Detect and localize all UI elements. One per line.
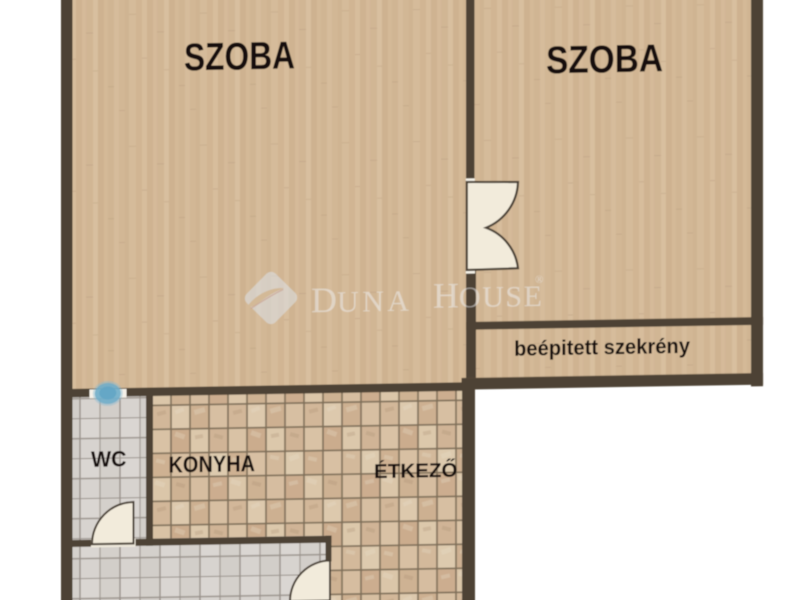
svg-text:HOUSE: HOUSE [433,274,543,316]
svg-text:®: ® [535,274,543,286]
svg-text:SZOBA: SZOBA [546,37,663,82]
svg-text:KONYHA: KONYHA [169,450,256,477]
svg-text:WC: WC [91,446,127,472]
svg-text:ÉTKEZŐ: ÉTKEZŐ [374,459,458,483]
svg-text:beépitett szekrény: beépitett szekrény [514,334,690,361]
svg-text:SZOBA: SZOBA [184,34,295,79]
svg-text:DUNA: DUNA [311,278,412,320]
